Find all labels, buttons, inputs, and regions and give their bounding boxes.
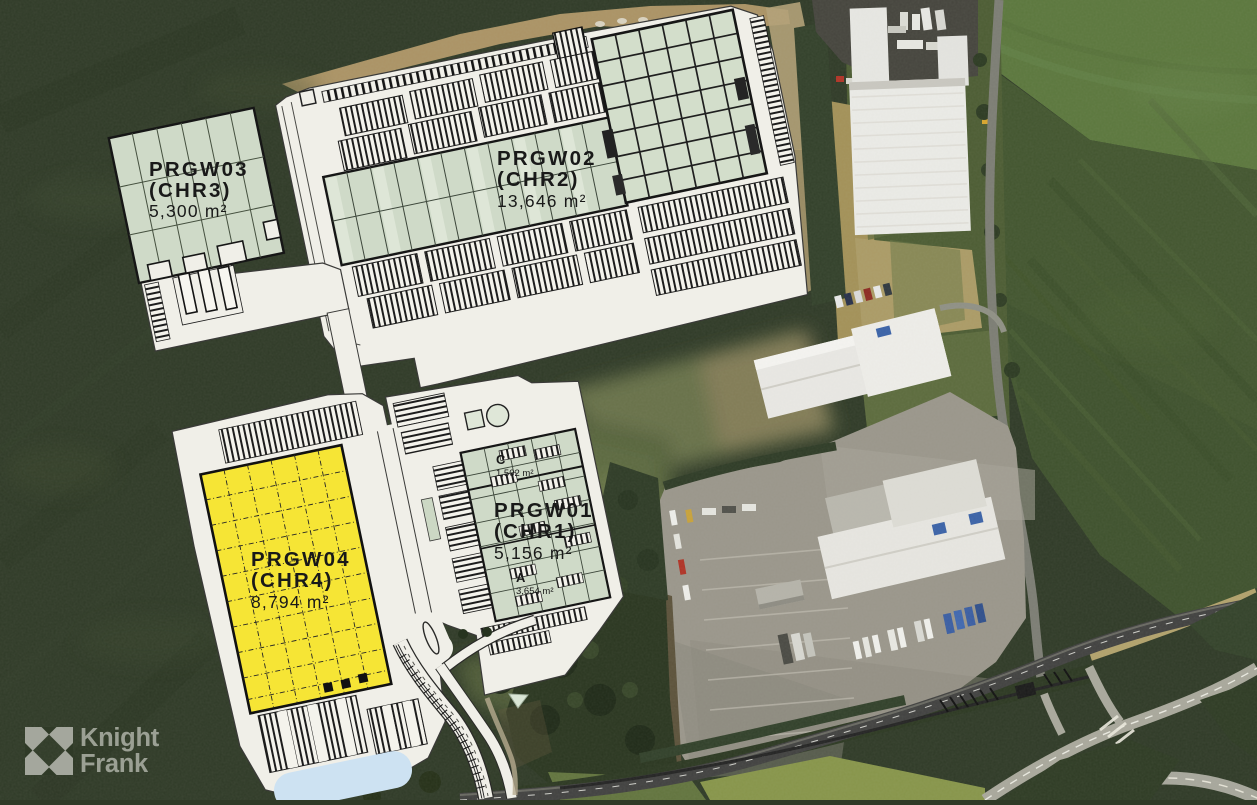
svg-text:PRGW04: PRGW04 [251, 548, 351, 571]
svg-text:C: C [496, 452, 506, 467]
svg-text:5,156 m²: 5,156 m² [494, 543, 573, 563]
svg-text:5,300 m²: 5,300 m² [149, 201, 228, 221]
svg-text:PRGW02: PRGW02 [497, 147, 597, 170]
svg-text:Frank: Frank [80, 750, 149, 778]
svg-text:13,646 m²: 13,646 m² [497, 191, 587, 211]
svg-text:Knight: Knight [80, 724, 160, 752]
svg-text:(CHR4): (CHR4) [251, 569, 334, 592]
svg-text:PRGW03: PRGW03 [149, 158, 249, 181]
svg-text:(CHR2): (CHR2) [497, 168, 580, 191]
svg-text:1,502 m²: 1,502 m² [496, 468, 534, 479]
svg-text:8,794 m²: 8,794 m² [251, 592, 330, 612]
svg-text:(CHR1): (CHR1) [494, 520, 577, 543]
svg-text:PRGW01: PRGW01 [494, 499, 594, 522]
svg-text:(CHR3): (CHR3) [149, 179, 232, 202]
svg-text:3,654 m²: 3,654 m² [516, 586, 554, 597]
svg-text:A: A [516, 570, 526, 585]
